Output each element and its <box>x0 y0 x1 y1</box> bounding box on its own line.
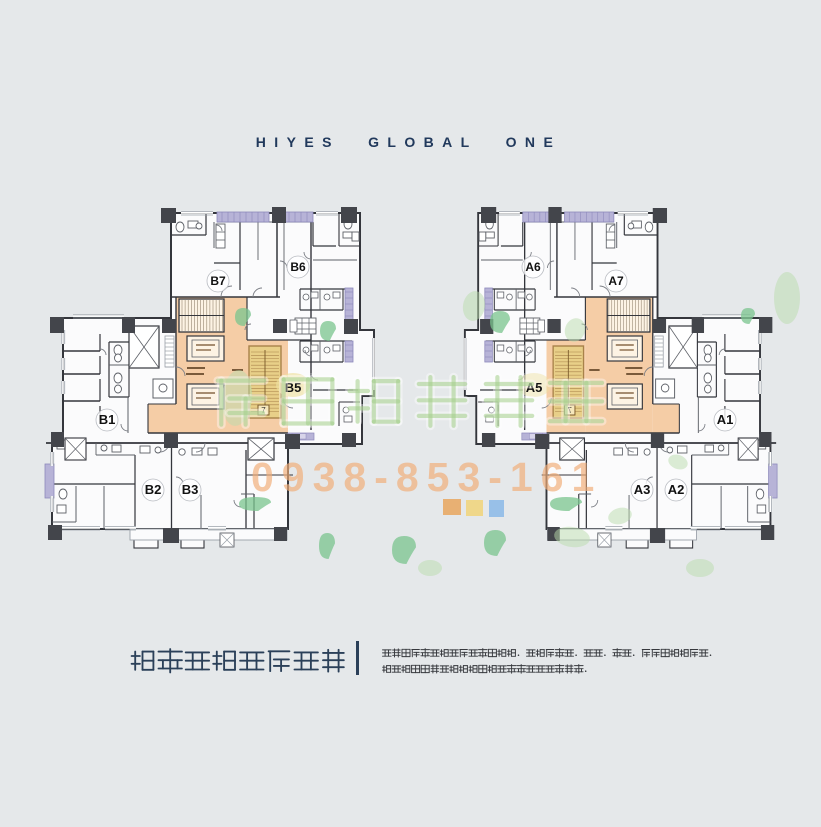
svg-text:A7: A7 <box>608 274 624 288</box>
svg-text:B7: B7 <box>210 274 226 288</box>
svg-text:B1: B1 <box>99 412 116 427</box>
svg-text:B6: B6 <box>290 260 306 274</box>
svg-text:0938-853-161: 0938-853-161 <box>251 454 602 500</box>
svg-text:A2: A2 <box>668 482 685 497</box>
svg-text:B2: B2 <box>145 482 162 497</box>
svg-text:A6: A6 <box>525 260 541 274</box>
svg-text:B3: B3 <box>182 482 199 497</box>
svg-text:A3: A3 <box>634 482 651 497</box>
svg-text:A1: A1 <box>717 412 734 427</box>
